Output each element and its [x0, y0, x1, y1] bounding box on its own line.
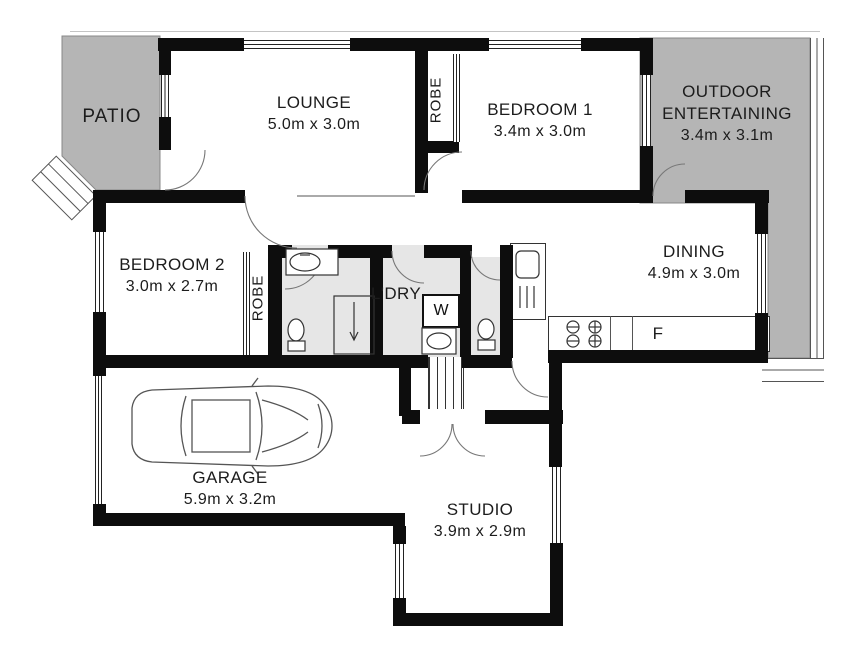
- robe-door-line: [453, 54, 460, 142]
- garage-door-line: [95, 376, 102, 504]
- door-arc-bedroom1: [424, 152, 462, 190]
- wall: [159, 117, 171, 150]
- floor-plan: W: [0, 0, 866, 650]
- room-label-robe-lower: ROBE: [250, 275, 267, 322]
- room-dims-garage: 5.9m x 3.2m: [184, 491, 276, 509]
- room-dims-studio: 3.9m x 2.9m: [434, 523, 526, 541]
- stairs: [428, 357, 464, 409]
- wall: [380, 355, 428, 368]
- wall: [548, 350, 768, 363]
- wall: [462, 190, 653, 203]
- window: [552, 467, 561, 543]
- wall: [159, 38, 171, 75]
- room-dims-bedroom1: 3.4m x 3.0m: [494, 123, 586, 141]
- window: [757, 234, 766, 313]
- wall: [93, 190, 106, 232]
- wall: [268, 245, 282, 357]
- wall: [460, 257, 471, 357]
- wall: [93, 355, 380, 368]
- washer-label: W: [433, 302, 448, 320]
- wall: [93, 190, 245, 203]
- window: [161, 75, 169, 117]
- room-label-bedroom2: BEDROOM 2: [119, 255, 225, 275]
- door-arc-studio-left: [420, 424, 452, 456]
- window: [642, 75, 651, 146]
- window: [395, 544, 404, 598]
- door-arc-outdoor: [653, 164, 685, 196]
- room-label-outdoor-2: ENTERTAINING: [662, 104, 792, 124]
- door-arc-lounge-patio: [165, 150, 205, 190]
- opening-line: [297, 195, 415, 197]
- wall: [268, 245, 292, 258]
- room-label-dining: DINING: [663, 242, 725, 262]
- room-dims-outdoor: 3.4m x 3.1m: [681, 127, 773, 145]
- room-dims-bedroom2: 3.0m x 2.7m: [126, 278, 218, 296]
- room-label-laundry: L'DRY: [371, 284, 421, 304]
- wall: [485, 410, 563, 424]
- outdoor-steps: [762, 358, 824, 382]
- bench-divider: [632, 316, 633, 350]
- window: [95, 232, 104, 312]
- wc-floor: [471, 257, 500, 355]
- room-label-bedroom1: BEDROOM 1: [487, 100, 593, 120]
- door-arc-bedroom2: [245, 196, 297, 248]
- wall: [393, 526, 406, 544]
- fridge-label: F: [653, 324, 664, 344]
- window: [244, 40, 350, 49]
- window: [489, 40, 581, 49]
- kitchen-sink-bench: [510, 243, 546, 320]
- bathroom-floor: [282, 245, 372, 357]
- patio-steps: [32, 156, 96, 220]
- wall: [550, 543, 563, 626]
- outdoor-railing: [810, 38, 824, 382]
- room-dims-lounge: 5.0m x 3.0m: [268, 116, 360, 134]
- wall: [93, 513, 405, 526]
- wall: [93, 312, 106, 358]
- wall: [424, 245, 460, 258]
- door-arc-studio-right: [453, 424, 485, 456]
- wall: [685, 190, 769, 203]
- wall: [755, 203, 768, 234]
- wall: [500, 245, 513, 358]
- room-dims-dining: 4.9m x 3.0m: [648, 265, 740, 283]
- wall: [393, 613, 563, 626]
- car: [132, 378, 332, 474]
- washing-machine: W: [422, 294, 460, 328]
- room-label-robe-top: ROBE: [428, 77, 445, 124]
- wall: [640, 38, 653, 75]
- bench-divider: [610, 316, 611, 350]
- room-label-outdoor-1: OUTDOOR: [682, 82, 772, 102]
- wall: [399, 368, 411, 416]
- wall: [370, 245, 392, 258]
- wall: [549, 355, 562, 410]
- room-label-patio: PATIO: [82, 106, 141, 128]
- wall: [328, 245, 372, 258]
- room-label-lounge: LOUNGE: [277, 93, 351, 113]
- wall: [415, 50, 428, 193]
- room-label-garage: GARAGE: [192, 468, 267, 488]
- roof-outline: [70, 31, 820, 32]
- door-arc-hall: [512, 361, 548, 397]
- room-label-studio: STUDIO: [447, 500, 514, 520]
- wall: [415, 141, 459, 153]
